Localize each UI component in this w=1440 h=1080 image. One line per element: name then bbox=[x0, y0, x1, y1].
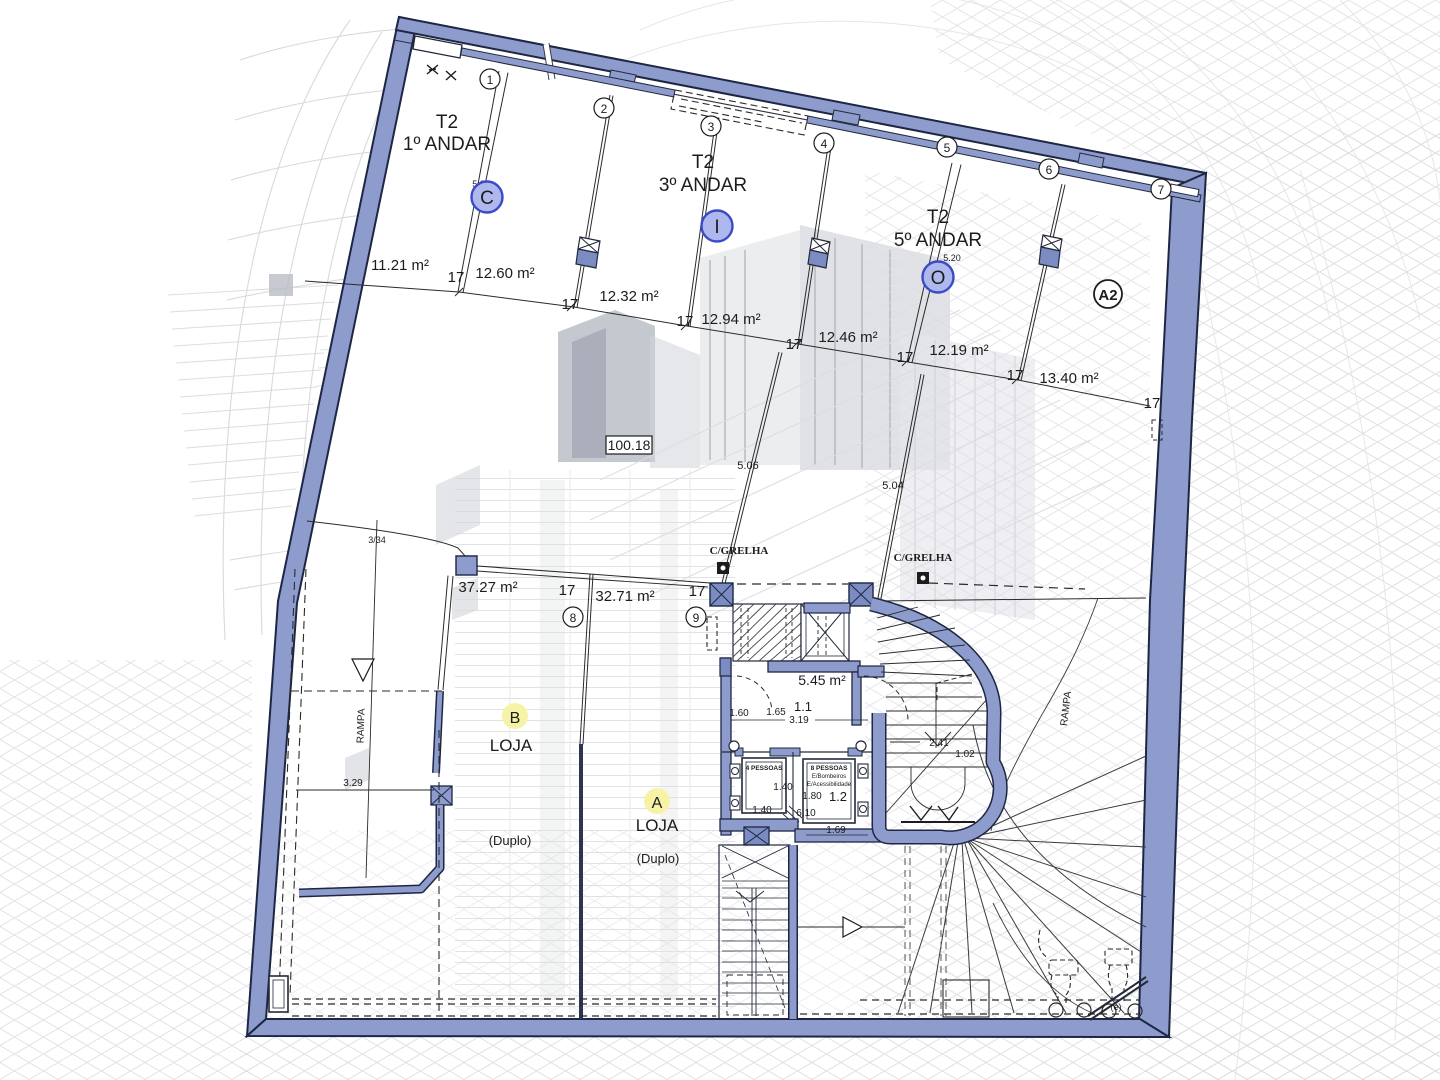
svg-text:5º ANDAR: 5º ANDAR bbox=[894, 230, 982, 251]
svg-text:T2: T2 bbox=[692, 152, 714, 173]
svg-text:E/Acessibilidade: E/Acessibilidade bbox=[807, 782, 852, 788]
svg-text:1.80: 1.80 bbox=[802, 791, 822, 802]
svg-text:C: C bbox=[480, 188, 494, 209]
svg-text:17: 17 bbox=[448, 269, 465, 286]
svg-text:1.40: 1.40 bbox=[773, 782, 793, 793]
svg-text:(e): (e) bbox=[1111, 1002, 1122, 1012]
svg-text:5.20: 5.20 bbox=[943, 253, 961, 263]
svg-text:1.2: 1.2 bbox=[829, 789, 847, 804]
svg-text:A2: A2 bbox=[1098, 287, 1117, 304]
svg-text:3º ANDAR: 3º ANDAR bbox=[659, 175, 747, 196]
svg-text:A: A bbox=[652, 795, 663, 812]
svg-text:1.1: 1.1 bbox=[794, 699, 812, 714]
svg-text:5.06: 5.06 bbox=[737, 460, 758, 472]
svg-text:17: 17 bbox=[677, 313, 694, 330]
svg-text:5.04: 5.04 bbox=[882, 480, 903, 492]
svg-text:4: 4 bbox=[821, 137, 828, 151]
svg-text:37.27 m²: 37.27 m² bbox=[458, 579, 517, 596]
svg-text:11.21 m²: 11.21 m² bbox=[371, 257, 429, 274]
svg-text:12.19 m²: 12.19 m² bbox=[929, 342, 988, 359]
svg-text:17: 17 bbox=[1144, 395, 1161, 412]
svg-text:4 PESSOAS: 4 PESSOAS bbox=[746, 765, 784, 772]
svg-text:1.60: 1.60 bbox=[729, 708, 749, 719]
svg-text:17: 17 bbox=[786, 336, 803, 353]
svg-text:12.94 m²: 12.94 m² bbox=[701, 311, 760, 328]
svg-text:3.19: 3.19 bbox=[789, 715, 809, 726]
svg-text:(Duplo): (Duplo) bbox=[489, 833, 532, 848]
svg-text:17: 17 bbox=[897, 349, 914, 366]
svg-text:O: O bbox=[931, 268, 946, 289]
svg-text:1.65: 1.65 bbox=[766, 707, 786, 718]
svg-text:8: 8 bbox=[570, 611, 577, 625]
svg-text:T2: T2 bbox=[927, 207, 949, 228]
svg-text:5: 5 bbox=[944, 141, 951, 155]
svg-text:1º ANDAR: 1º ANDAR bbox=[403, 134, 491, 155]
svg-text:(Duplo): (Duplo) bbox=[637, 851, 680, 866]
svg-text:12.32 m²: 12.32 m² bbox=[599, 288, 658, 305]
svg-text:12.46 m²: 12.46 m² bbox=[818, 329, 877, 346]
svg-text:7: 7 bbox=[1158, 183, 1165, 197]
svg-text:13.40 m²: 13.40 m² bbox=[1039, 370, 1098, 387]
svg-text:17: 17 bbox=[689, 583, 706, 600]
svg-text:2: 2 bbox=[601, 102, 608, 116]
svg-text:LOJA: LOJA bbox=[636, 816, 679, 835]
svg-text:17: 17 bbox=[559, 582, 576, 599]
svg-text:LOJA: LOJA bbox=[490, 736, 533, 755]
svg-text:8 PESSOAS: 8 PESSOAS bbox=[811, 765, 849, 772]
svg-text:5.45 m²: 5.45 m² bbox=[798, 672, 846, 688]
svg-text:E/Bombeiros: E/Bombeiros bbox=[812, 774, 846, 780]
svg-text:17: 17 bbox=[1007, 367, 1024, 384]
svg-text:3: 3 bbox=[708, 120, 715, 134]
svg-text:1.69: 1.69 bbox=[826, 825, 846, 836]
svg-text:1.02: 1.02 bbox=[955, 749, 975, 760]
svg-text:3/34: 3/34 bbox=[368, 535, 386, 545]
svg-text:12.60 m²: 12.60 m² bbox=[475, 265, 534, 282]
svg-text:I: I bbox=[714, 217, 719, 238]
svg-text:1: 1 bbox=[487, 73, 494, 87]
svg-text:1.40: 1.40 bbox=[752, 805, 772, 816]
svg-text:9: 9 bbox=[693, 611, 700, 625]
svg-text:100.18: 100.18 bbox=[608, 437, 651, 453]
svg-text:C/GRELHA: C/GRELHA bbox=[894, 552, 953, 564]
svg-text:6.10: 6.10 bbox=[796, 808, 816, 819]
svg-text:17: 17 bbox=[562, 296, 579, 313]
svg-text:C/GRELHA: C/GRELHA bbox=[710, 545, 769, 557]
svg-text:B: B bbox=[510, 710, 521, 727]
svg-text:2.41: 2.41 bbox=[929, 738, 949, 749]
svg-text:32.71 m²: 32.71 m² bbox=[595, 588, 654, 605]
svg-text:RAMPA: RAMPA bbox=[355, 708, 367, 744]
svg-text:3.29: 3.29 bbox=[343, 778, 363, 789]
svg-text:T2: T2 bbox=[436, 112, 458, 133]
svg-text:6: 6 bbox=[1046, 163, 1053, 177]
